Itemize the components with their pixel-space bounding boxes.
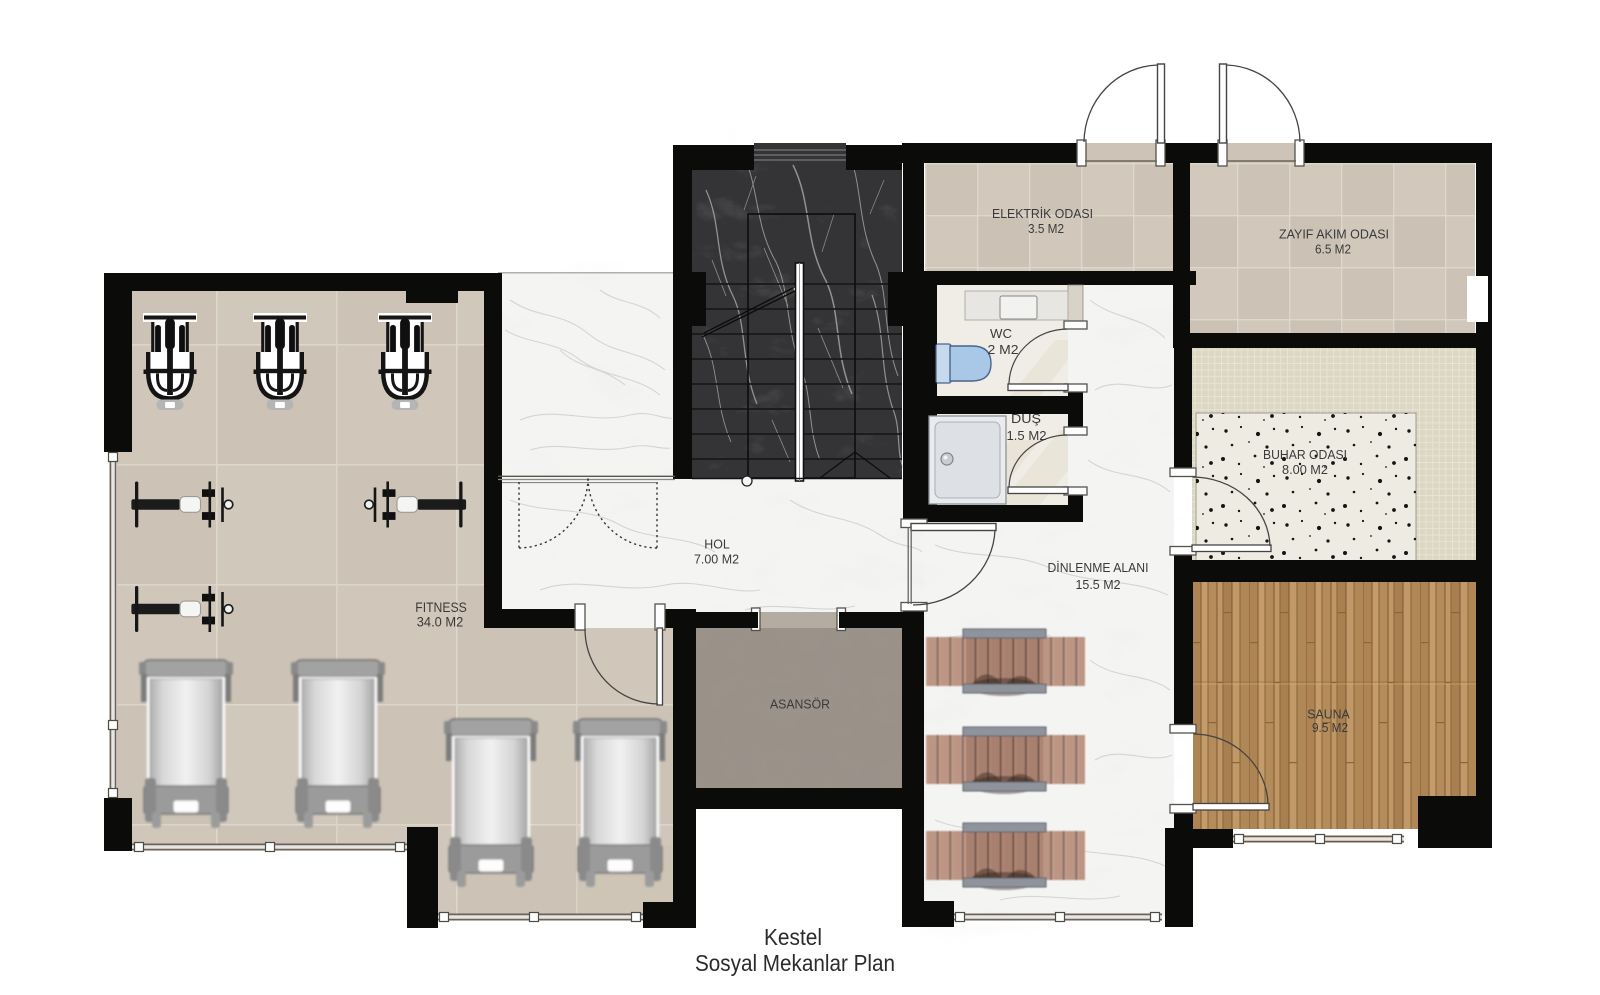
- svg-text:Sosyal Mekanlar Plan: Sosyal Mekanlar Plan: [695, 950, 895, 976]
- svg-text:3.5 M2: 3.5 M2: [1028, 221, 1064, 236]
- svg-text:6.5 M2: 6.5 M2: [1315, 242, 1351, 257]
- svg-text:15.5 M2: 15.5 M2: [1076, 577, 1121, 592]
- svg-text:ELEKTRİK ODASI: ELEKTRİK ODASI: [992, 206, 1093, 221]
- svg-text:34.0 M2: 34.0 M2: [417, 615, 464, 630]
- svg-text:BUHAR ODASI: BUHAR ODASI: [1263, 447, 1347, 462]
- svg-text:2 M2: 2 M2: [988, 342, 1019, 357]
- svg-text:WC: WC: [990, 326, 1012, 341]
- svg-text:DUŞ: DUŞ: [1011, 411, 1041, 426]
- svg-text:ASANSÖR: ASANSÖR: [770, 697, 830, 712]
- svg-text:1.5 M2: 1.5 M2: [1007, 428, 1047, 443]
- svg-text:7.00 M2: 7.00 M2: [694, 552, 739, 567]
- svg-text:FITNESS: FITNESS: [415, 600, 467, 615]
- svg-text:DİNLENME ALANI: DİNLENME ALANI: [1048, 560, 1149, 575]
- svg-text:9.5 M2: 9.5 M2: [1312, 720, 1348, 735]
- svg-text:Kestel: Kestel: [764, 924, 822, 950]
- svg-text:ZAYIF AKIM ODASI: ZAYIF AKIM ODASI: [1279, 227, 1389, 242]
- svg-text:8.00 M2: 8.00 M2: [1282, 462, 1328, 477]
- svg-text:HOL: HOL: [704, 537, 730, 552]
